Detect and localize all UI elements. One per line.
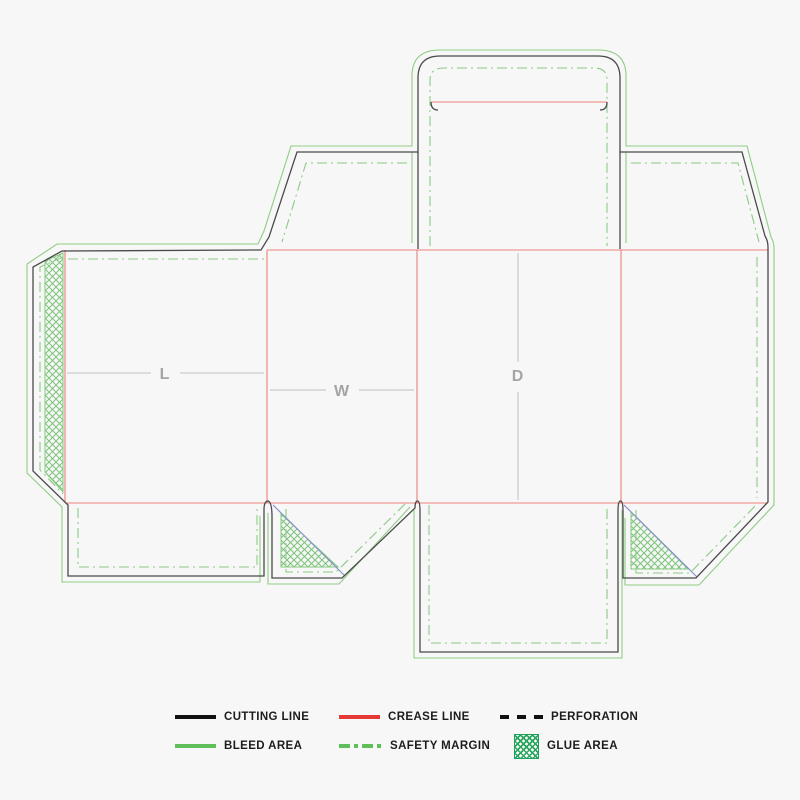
- dieline-diagram: L W D: [0, 0, 800, 800]
- panel-label-depth: D: [512, 368, 525, 385]
- dieline-template-page: L W D CUTTING LINE CREASE LINE PERFORATI…: [0, 0, 800, 800]
- panel-label-length: L: [160, 366, 171, 383]
- dimension-lines: [67, 253, 518, 500]
- cutting-line-slits: [418, 102, 620, 249]
- panel-label-width: W: [334, 383, 350, 400]
- glue-area-left-flap: [45, 253, 63, 492]
- crease-lines: [65, 102, 768, 503]
